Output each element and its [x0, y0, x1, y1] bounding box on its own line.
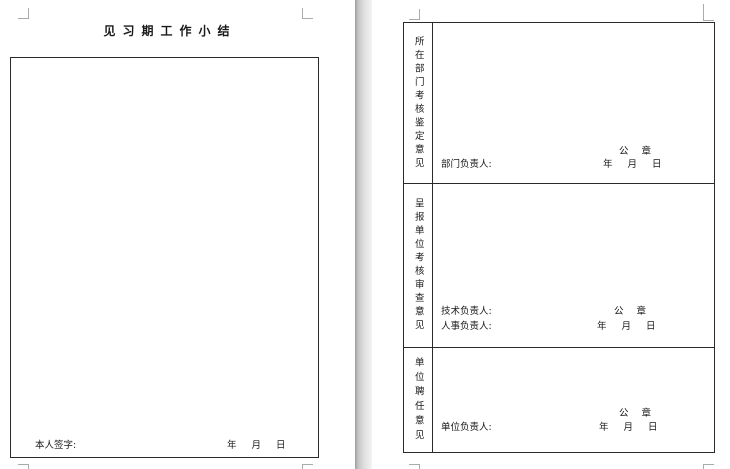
margin-mark-top-left-icon: [409, 9, 420, 20]
page-2[interactable]: 所在部门考核鉴定意见 公 章 部门负责人: 年 月 日 呈报单位考核审查意见 技…: [372, 0, 730, 469]
assessment-table: 所在部门考核鉴定意见 公 章 部门负责人: 年 月 日 呈报单位考核审查意见 技…: [403, 22, 715, 453]
table-row: 所在部门考核鉴定意见 公 章 部门负责人: 年 月 日: [404, 23, 714, 184]
table-row: 呈报单位考核审查意见 技术负责人: 公 章 人事负责人: 年 月 日: [404, 184, 714, 348]
date-line: 年 月 日: [227, 439, 286, 452]
seal-label: 公 章: [619, 145, 651, 158]
margin-mark-top-right-icon: [302, 8, 313, 19]
date-line: 年 月 日: [603, 158, 662, 171]
document-canvas: 见习期工作小结 本人签字: 年 月 日 所在部门考核鉴定意见 公 章 部门负责人…: [0, 0, 730, 469]
section-label-cell: 呈报单位考核审查意见: [404, 184, 433, 347]
margin-mark-bottom-right-icon: [703, 464, 714, 469]
seal-label: 公 章: [614, 305, 646, 318]
signer-label: 人事负责人:: [441, 320, 492, 333]
seal-label: 公 章: [619, 407, 651, 420]
margin-mark-bottom-right-icon: [302, 464, 313, 469]
signature-label: 本人签字:: [35, 439, 76, 452]
section-content-cell[interactable]: 公 章 部门负责人: 年 月 日: [433, 23, 714, 183]
date-line: 年 月 日: [599, 421, 658, 434]
section-label: 呈报单位考核审查意见: [413, 198, 423, 333]
table-row: 单位聘任意见 公 章 单位负责人: 年 月 日: [404, 348, 714, 452]
margin-mark-top-right-icon: [703, 4, 714, 21]
section-label: 单位聘任意见: [413, 357, 423, 444]
section-content-cell[interactable]: 技术负责人: 公 章 人事负责人: 年 月 日: [433, 184, 714, 347]
page-title: 见习期工作小结: [10, 22, 330, 39]
section-label-cell: 单位聘任意见: [404, 348, 433, 452]
section-content-cell[interactable]: 公 章 单位负责人: 年 月 日: [433, 348, 714, 452]
signature-row: 本人签字: 年 月 日: [11, 439, 318, 452]
signer-label: 技术负责人:: [441, 305, 492, 318]
page-1[interactable]: 见习期工作小结 本人签字: 年 月 日: [0, 0, 355, 469]
margin-mark-top-left-icon: [18, 8, 29, 19]
margin-mark-bottom-left-icon: [409, 464, 420, 469]
signer-label: 单位负责人:: [441, 421, 492, 434]
margin-mark-bottom-left-icon: [18, 464, 29, 469]
section-label: 所在部门考核鉴定意见: [413, 36, 423, 171]
section-label-cell: 所在部门考核鉴定意见: [404, 23, 433, 183]
page-separator: [355, 0, 372, 469]
date-line: 年 月 日: [597, 320, 656, 333]
signer-label: 部门负责人:: [441, 158, 492, 171]
summary-box[interactable]: 本人签字: 年 月 日: [10, 57, 319, 458]
